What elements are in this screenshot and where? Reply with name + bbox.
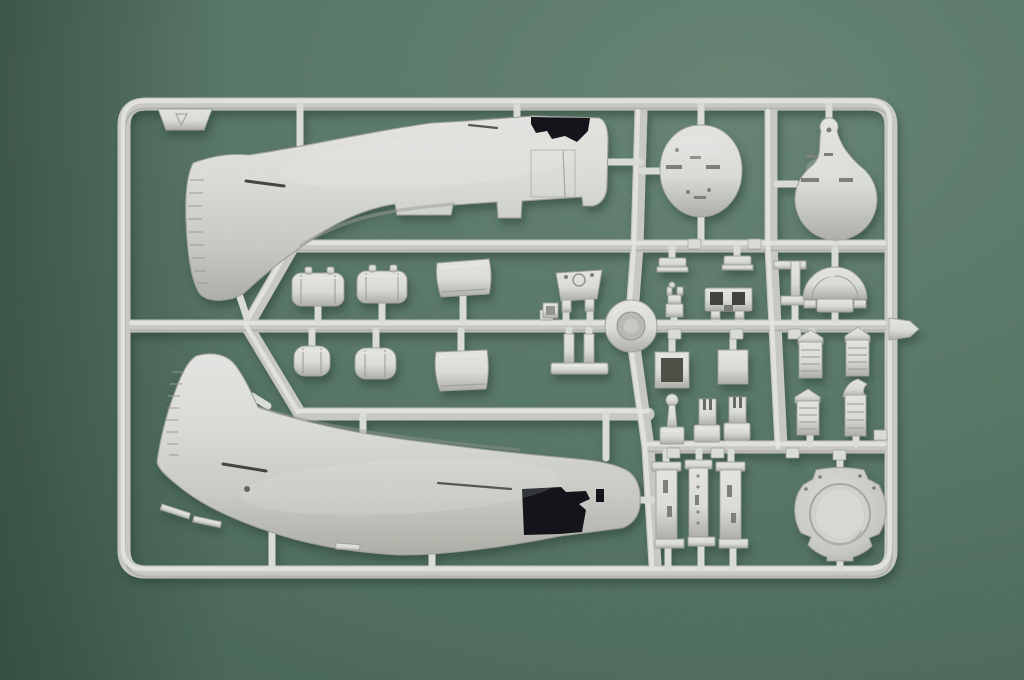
photo-grain — [0, 0, 1024, 680]
photo-stage — [0, 0, 1024, 680]
sprue-photo — [0, 0, 1024, 680]
